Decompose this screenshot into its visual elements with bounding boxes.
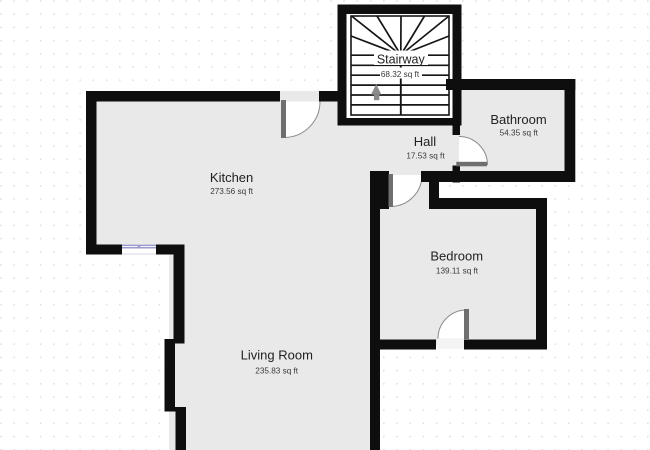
svg-text:54.35 sq ft: 54.35 sq ft <box>500 128 539 137</box>
svg-text:Bedroom: Bedroom <box>430 248 483 263</box>
svg-text:Hall: Hall <box>414 134 437 149</box>
svg-text:Bathroom: Bathroom <box>490 112 546 127</box>
svg-text:68.32 sq ft: 68.32 sq ft <box>381 70 420 79</box>
svg-text:235.83 sq ft: 235.83 sq ft <box>255 367 299 376</box>
svg-text:273.56 sq ft: 273.56 sq ft <box>210 187 254 196</box>
svg-text:Stairway: Stairway <box>377 53 426 67</box>
svg-text:139.11 sq ft: 139.11 sq ft <box>436 266 479 275</box>
svg-text:17.53 sq ft: 17.53 sq ft <box>406 152 445 161</box>
svg-text:Living Room: Living Room <box>241 348 313 363</box>
svg-text:Kitchen: Kitchen <box>210 170 253 185</box>
